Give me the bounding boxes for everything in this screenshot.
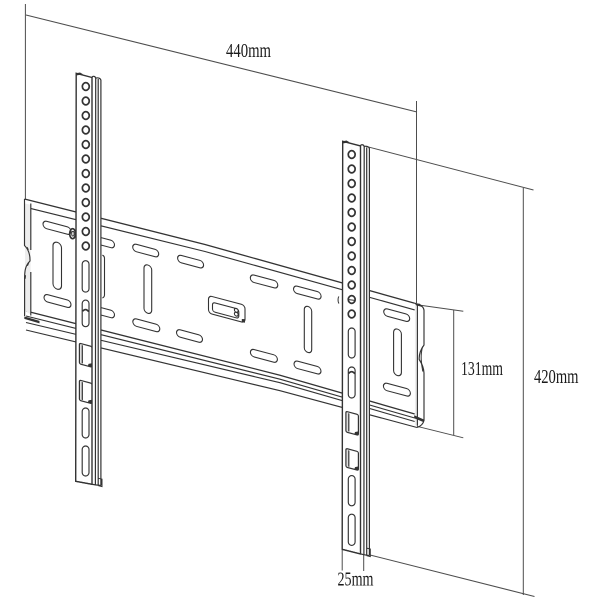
svg-text:131mm: 131mm [461,358,503,380]
svg-text:420mm: 420mm [534,366,579,388]
svg-text:25mm: 25mm [338,569,374,591]
svg-text:440mm: 440mm [226,40,271,62]
